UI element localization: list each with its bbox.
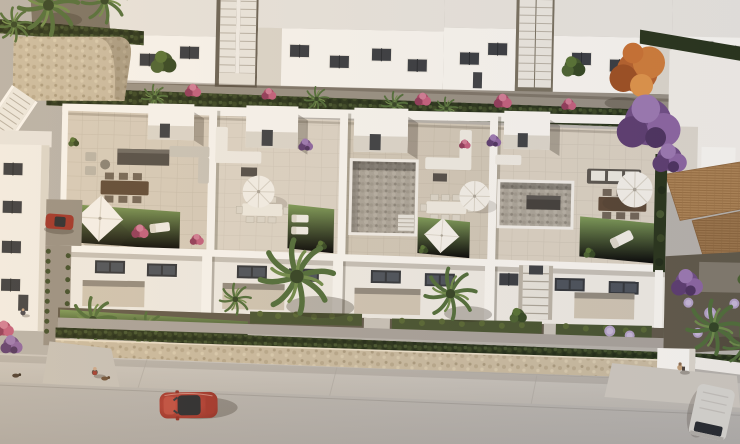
sunlight-overlay [0,0,740,444]
scene-canvas [0,0,740,444]
aerial-render [0,0,740,444]
